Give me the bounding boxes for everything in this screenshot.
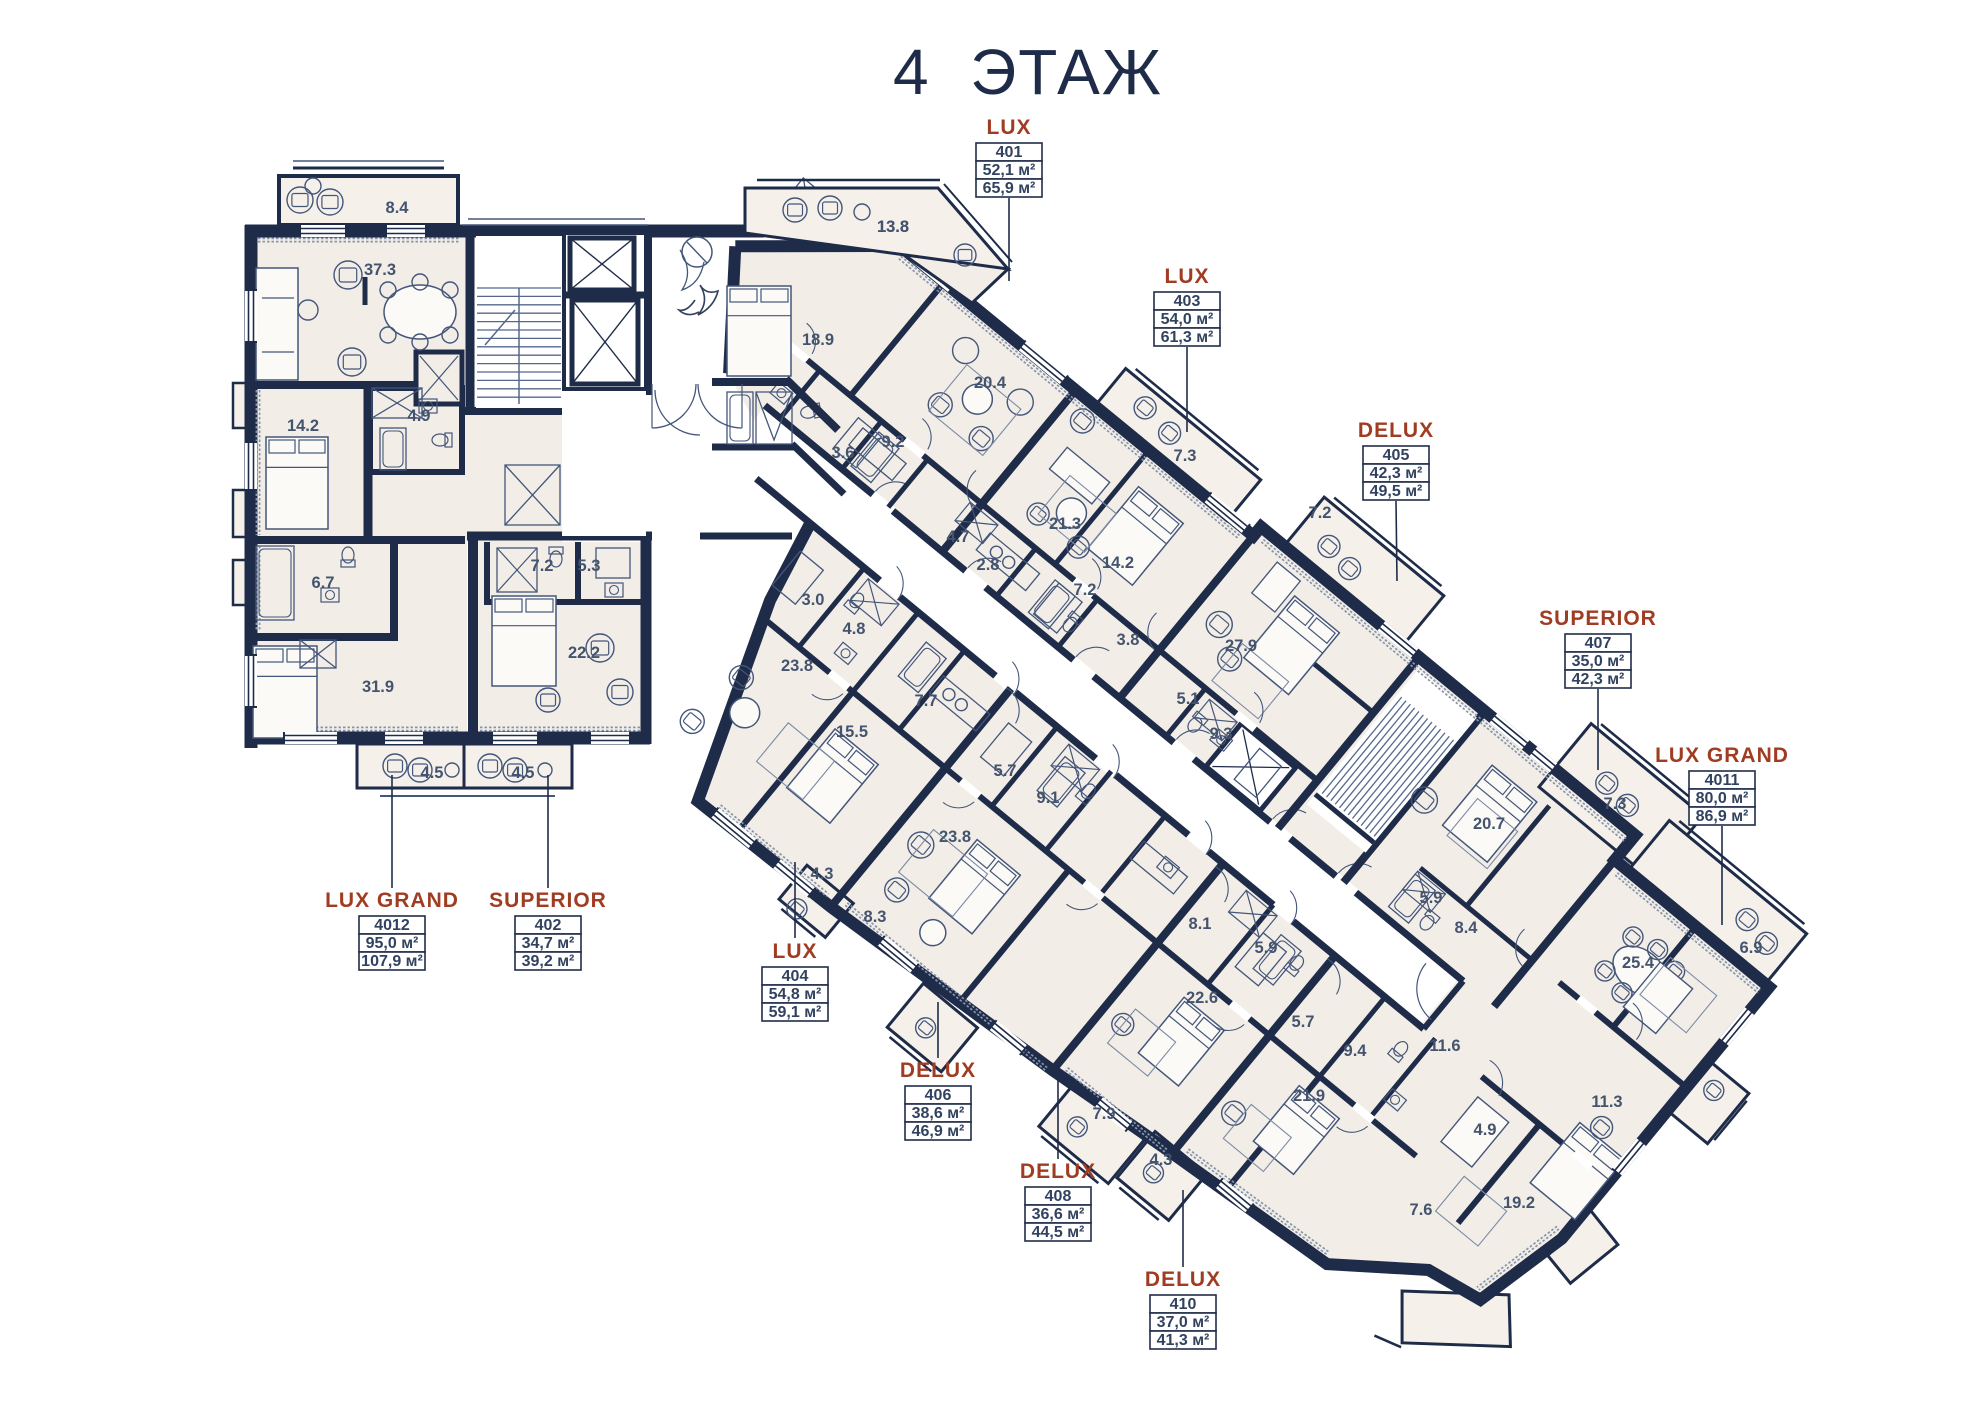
svg-text:5.3: 5.3 bbox=[578, 557, 601, 575]
svg-text:4.9: 4.9 bbox=[408, 407, 431, 425]
svg-text:34,7 м²: 34,7 м² bbox=[522, 935, 575, 952]
svg-text:61,3 м²: 61,3 м² bbox=[1161, 329, 1214, 346]
svg-text:14.2: 14.2 bbox=[287, 417, 319, 435]
svg-text:4.5: 4.5 bbox=[512, 764, 535, 782]
svg-text:4 ЭТАЖ: 4 ЭТАЖ bbox=[893, 36, 1163, 108]
svg-text:404: 404 bbox=[782, 968, 809, 985]
svg-text:LUX GRAND: LUX GRAND bbox=[325, 889, 459, 912]
svg-text:42,3 м²: 42,3 м² bbox=[1370, 465, 1423, 482]
svg-text:21.3: 21.3 bbox=[1049, 515, 1081, 533]
svg-text:7.3: 7.3 bbox=[1604, 795, 1627, 813]
svg-text:20.7: 20.7 bbox=[1473, 815, 1505, 833]
svg-text:8.4: 8.4 bbox=[1455, 919, 1479, 937]
svg-text:11.3: 11.3 bbox=[1591, 1093, 1622, 1111]
svg-text:23.8: 23.8 bbox=[781, 657, 813, 675]
svg-text:408: 408 bbox=[1045, 1188, 1072, 1205]
svg-text:59,1 м²: 59,1 м² bbox=[769, 1004, 822, 1021]
svg-text:7.2: 7.2 bbox=[531, 557, 554, 575]
svg-text:4.8: 4.8 bbox=[843, 620, 866, 638]
svg-text:38,6 м²: 38,6 м² bbox=[912, 1105, 965, 1122]
svg-text:LUX: LUX bbox=[773, 940, 818, 963]
svg-text:37,0 м²: 37,0 м² bbox=[1157, 1314, 1210, 1331]
svg-text:8.1: 8.1 bbox=[1189, 915, 1212, 933]
svg-text:9.4: 9.4 bbox=[1344, 1042, 1368, 1060]
svg-text:22.2: 22.2 bbox=[568, 644, 600, 662]
svg-text:406: 406 bbox=[925, 1087, 952, 1104]
svg-text:3.6: 3.6 bbox=[832, 444, 855, 462]
svg-text:42,3 м²: 42,3 м² bbox=[1572, 671, 1625, 688]
svg-text:402: 402 bbox=[535, 917, 562, 934]
svg-text:405: 405 bbox=[1383, 447, 1410, 464]
svg-text:36,6 м²: 36,6 м² bbox=[1032, 1206, 1085, 1223]
svg-text:4.3: 4.3 bbox=[1150, 1151, 1173, 1169]
svg-text:5.1: 5.1 bbox=[1177, 690, 1200, 708]
svg-text:107,9 м²: 107,9 м² bbox=[361, 953, 423, 970]
svg-text:LUX: LUX bbox=[987, 116, 1032, 139]
svg-text:5.7: 5.7 bbox=[1292, 1013, 1315, 1031]
svg-text:54,0 м²: 54,0 м² bbox=[1161, 311, 1214, 328]
svg-text:407: 407 bbox=[1585, 635, 1612, 652]
svg-text:37.3: 37.3 bbox=[364, 261, 396, 279]
svg-text:23.8: 23.8 bbox=[939, 828, 971, 846]
svg-text:DELUX: DELUX bbox=[1145, 1268, 1221, 1291]
svg-text:18.9: 18.9 bbox=[802, 331, 834, 349]
svg-text:SUPERIOR: SUPERIOR bbox=[489, 889, 607, 912]
svg-text:6.9: 6.9 bbox=[1740, 939, 1763, 957]
svg-text:9.2: 9.2 bbox=[882, 433, 905, 451]
svg-text:11.6: 11.6 bbox=[1429, 1037, 1460, 1055]
svg-text:8.4: 8.4 bbox=[386, 199, 410, 217]
svg-text:4.7: 4.7 bbox=[947, 528, 970, 546]
svg-text:3.0: 3.0 bbox=[802, 591, 825, 609]
svg-text:44,5 м²: 44,5 м² bbox=[1032, 1224, 1085, 1241]
svg-text:86,9 м²: 86,9 м² bbox=[1696, 808, 1749, 825]
svg-text:14.2: 14.2 bbox=[1102, 554, 1134, 572]
svg-text:5.9: 5.9 bbox=[1255, 939, 1278, 957]
svg-text:22.6: 22.6 bbox=[1186, 989, 1218, 1007]
svg-text:4.9: 4.9 bbox=[1474, 1121, 1497, 1139]
svg-text:21.9: 21.9 bbox=[1293, 1087, 1325, 1105]
svg-text:4.5: 4.5 bbox=[421, 764, 444, 782]
svg-text:9.1: 9.1 bbox=[1037, 789, 1060, 807]
svg-text:31.9: 31.9 bbox=[362, 678, 394, 696]
svg-text:7.9: 7.9 bbox=[1093, 1105, 1116, 1123]
svg-text:403: 403 bbox=[1174, 293, 1201, 310]
svg-text:9.3: 9.3 bbox=[1210, 725, 1233, 743]
svg-text:15.5: 15.5 bbox=[836, 723, 868, 741]
svg-text:4011: 4011 bbox=[1705, 772, 1740, 789]
svg-text:95,0 м²: 95,0 м² bbox=[366, 935, 419, 952]
svg-text:39,2 м²: 39,2 м² bbox=[522, 953, 575, 970]
svg-text:19.2: 19.2 bbox=[1503, 1194, 1535, 1212]
svg-text:35,0 м²: 35,0 м² bbox=[1572, 653, 1625, 670]
svg-text:2.8: 2.8 bbox=[977, 556, 1000, 574]
svg-text:5.9: 5.9 bbox=[1420, 889, 1443, 907]
svg-text:6.7: 6.7 bbox=[312, 574, 335, 592]
svg-text:3.8: 3.8 bbox=[1117, 631, 1140, 649]
svg-text:4.3: 4.3 bbox=[811, 865, 834, 883]
svg-text:DELUX: DELUX bbox=[1358, 419, 1434, 442]
svg-text:LUX GRAND: LUX GRAND bbox=[1655, 744, 1789, 767]
svg-text:49,5 м²: 49,5 м² bbox=[1370, 483, 1423, 500]
svg-text:DELUX: DELUX bbox=[900, 1059, 976, 1082]
svg-text:13.8: 13.8 bbox=[877, 218, 909, 236]
svg-text:401: 401 bbox=[996, 144, 1023, 161]
svg-text:8.3: 8.3 bbox=[864, 908, 887, 926]
svg-text:5.7: 5.7 bbox=[994, 762, 1017, 780]
svg-text:25.4: 25.4 bbox=[1622, 954, 1655, 972]
svg-text:7.3: 7.3 bbox=[1174, 447, 1197, 465]
svg-text:410: 410 bbox=[1170, 1296, 1197, 1313]
svg-text:20.4: 20.4 bbox=[974, 374, 1007, 392]
svg-text:52,1 м²: 52,1 м² bbox=[983, 162, 1036, 179]
svg-text:27.9: 27.9 bbox=[1225, 637, 1257, 655]
svg-text:SUPERIOR: SUPERIOR bbox=[1539, 607, 1657, 630]
svg-text:65,9 м²: 65,9 м² bbox=[983, 180, 1036, 197]
svg-text:80,0 м²: 80,0 м² bbox=[1696, 790, 1749, 807]
svg-text:41,3 м²: 41,3 м² bbox=[1157, 1332, 1210, 1349]
svg-text:46,9 м²: 46,9 м² bbox=[912, 1123, 965, 1140]
svg-text:7.7: 7.7 bbox=[915, 692, 938, 710]
svg-text:54,8 м²: 54,8 м² bbox=[769, 986, 822, 1003]
svg-text:DELUX: DELUX bbox=[1020, 1160, 1096, 1183]
svg-text:LUX: LUX bbox=[1165, 265, 1210, 288]
svg-text:7.2: 7.2 bbox=[1309, 504, 1332, 522]
svg-text:7.6: 7.6 bbox=[1410, 1201, 1433, 1219]
svg-text:7.2: 7.2 bbox=[1074, 581, 1097, 599]
svg-text:4012: 4012 bbox=[374, 917, 410, 934]
